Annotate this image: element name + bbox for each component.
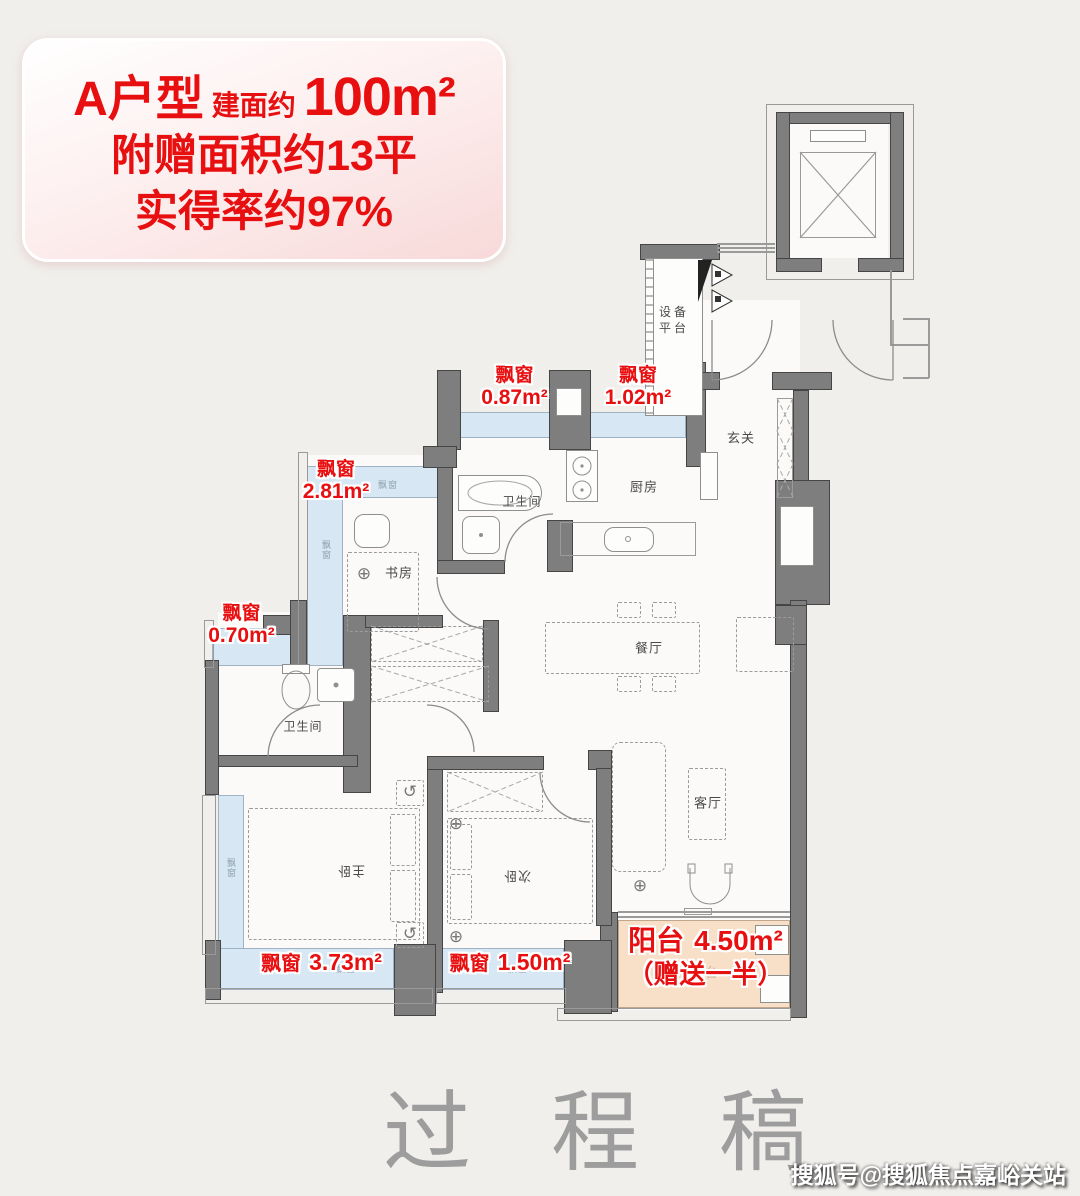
bay-name: 飘窗 — [261, 953, 301, 975]
credit-watermark: 搜狐号@搜狐焦点嘉峪关站 — [791, 1156, 1066, 1190]
bay-tag: 飘窗 — [225, 858, 238, 878]
fixture — [700, 452, 718, 500]
bay-label-070: 飘窗 0.70m² — [184, 604, 299, 647]
unit-rate-line: 实得率约97% — [135, 185, 393, 241]
room-label-equipment-platform: 设备平台 — [659, 304, 689, 336]
furniture — [736, 617, 794, 672]
outline — [205, 988, 433, 1004]
rotate-icon: ↺ — [403, 924, 417, 944]
bay-area: 3.73m² — [309, 949, 382, 975]
wall-segment — [772, 372, 832, 390]
unit-info-card: A户型 建面约 100m² 附赠面积约13平 实得率约97% — [22, 38, 506, 262]
wall-segment — [205, 660, 219, 795]
room-label-living: 客厅 — [694, 793, 722, 812]
bay-area: 1.02m² — [605, 386, 672, 409]
bay-label-281: 飘窗 2.81m² — [280, 460, 392, 503]
bay-label-373: 飘窗3.73m² — [214, 950, 429, 976]
room-label-kitchen: 厨房 — [630, 477, 658, 496]
fixture — [282, 664, 310, 674]
balcony-area: 4.50m² — [694, 925, 783, 956]
wall-segment — [218, 755, 358, 767]
bay-name: 飘窗 — [222, 603, 260, 624]
wall-segment — [793, 390, 809, 485]
outline — [903, 377, 929, 379]
wall-segment — [596, 768, 612, 926]
bay-tag: 飘窗 — [320, 540, 333, 560]
furniture — [450, 874, 472, 920]
compass-icon: ⊕ — [449, 814, 463, 834]
unit-area-value: 100m² — [304, 66, 455, 128]
rotate-icon: ↺ — [403, 782, 417, 802]
furniture — [652, 602, 676, 618]
outline — [928, 318, 930, 378]
outline — [717, 247, 775, 249]
furniture — [545, 622, 700, 674]
furniture — [390, 814, 416, 866]
bay-area: 2.81m² — [303, 480, 370, 503]
outline — [890, 344, 930, 346]
unit-bonus-line: 附赠面积约13平 — [111, 129, 417, 185]
compass-icon: ⊕ — [449, 927, 463, 947]
furniture — [447, 772, 543, 812]
bay-label-102: 飘窗 1.02m² — [578, 366, 698, 409]
fixture — [604, 527, 654, 552]
fixture — [810, 130, 866, 142]
outline — [557, 1008, 791, 1021]
furniture — [612, 742, 666, 872]
bay-name: 飘窗 — [495, 365, 533, 386]
unit-title-row: A户型 建面约 100m² — [73, 59, 455, 129]
outline — [903, 318, 929, 320]
outline — [684, 908, 712, 915]
furniture — [652, 676, 676, 692]
door-marker-dot — [715, 271, 721, 277]
balcony-name: 阳台 — [628, 925, 684, 956]
fixture — [566, 450, 598, 502]
furniture — [617, 676, 641, 692]
furniture — [617, 602, 641, 618]
room-label-dining: 餐厅 — [635, 638, 663, 657]
room-label-master-bedroom: 主卧 — [337, 863, 365, 882]
outline — [777, 398, 793, 498]
bay-label-087: 飘窗 0.87m² — [452, 366, 577, 409]
balcony-label: 阳台4.50m² （赠送一半） — [608, 926, 803, 988]
outline — [618, 916, 790, 918]
bay-window — [307, 498, 343, 666]
room-label-entry: 玄关 — [727, 428, 755, 447]
furniture — [390, 870, 416, 922]
outline — [202, 795, 216, 955]
bay-name: 飘窗 — [619, 365, 657, 386]
bay-area: 0.70m² — [208, 624, 275, 647]
room-label-second-bedroom: 次卧 — [503, 868, 531, 887]
bay-area: 0.87m² — [481, 386, 548, 409]
bay-area: 1.50m² — [498, 949, 571, 975]
outline — [800, 152, 876, 238]
bay-window — [218, 795, 244, 963]
compass-icon: ⊕ — [633, 876, 647, 896]
room-label-study: 书房 — [385, 563, 413, 582]
door-marker — [712, 264, 732, 286]
outline — [890, 270, 892, 345]
wall-segment — [588, 750, 612, 770]
unit-area-prefix: 建面约 — [212, 84, 296, 124]
outline — [436, 988, 566, 1004]
fixture — [780, 506, 814, 566]
room-label-bathroom-upper: 卫生间 — [502, 493, 541, 510]
room-label-bathroom-lower: 卫生间 — [283, 718, 322, 735]
wall-segment — [423, 446, 457, 468]
furniture — [371, 666, 489, 702]
bay-label-150: 飘窗1.50m² — [440, 950, 580, 976]
balcony-note: （赠送一半） — [608, 960, 803, 988]
fixture — [462, 516, 500, 554]
fixture — [317, 668, 355, 702]
outline — [717, 251, 775, 253]
bay-name: 飘窗 — [450, 953, 490, 975]
bay-window — [455, 412, 553, 438]
unit-type: A户型 — [73, 59, 204, 129]
fixture — [354, 514, 390, 548]
wall-segment — [427, 756, 544, 770]
wall-segment — [437, 560, 505, 574]
outline — [717, 243, 775, 245]
compass-icon: ⊕ — [357, 564, 371, 584]
bay-name: 飘窗 — [317, 459, 355, 480]
